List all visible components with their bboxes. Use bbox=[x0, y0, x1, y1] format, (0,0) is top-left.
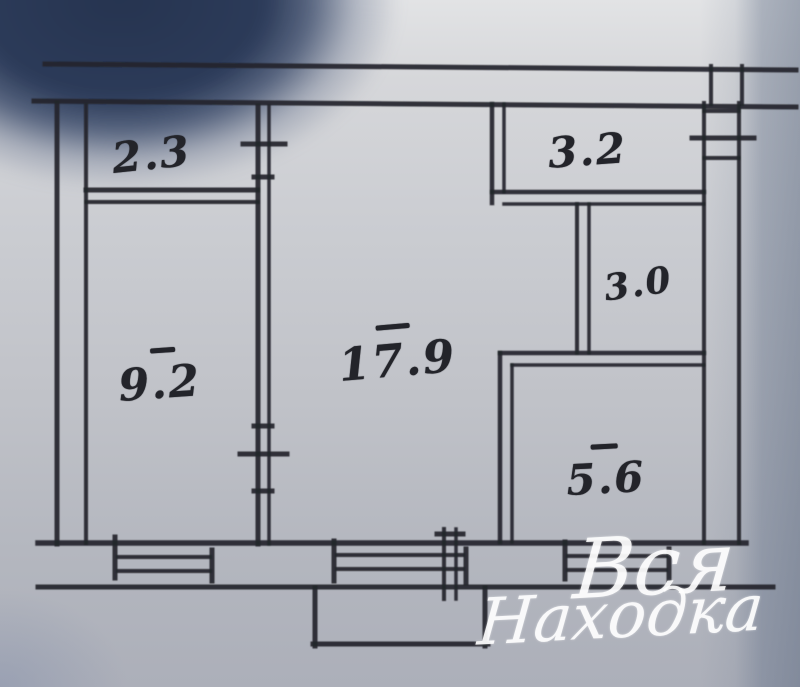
central-wall bbox=[258, 106, 269, 544]
left-wall bbox=[57, 103, 86, 544]
top-wall bbox=[34, 64, 796, 107]
scanned-floor-plan-photo: 2.3 3.2 3.0 17.9 9.2 5.6 Вся Находка bbox=[0, 0, 800, 687]
hallway-divider-wall bbox=[577, 204, 589, 353]
room-area-label-17-9: 17.9 bbox=[336, 319, 458, 388]
room-area-value: 17.9 bbox=[337, 329, 459, 392]
room-area-label-9-2: 9.2 bbox=[116, 345, 202, 409]
room-area-value: 3.2 bbox=[546, 123, 628, 177]
room-area-label-3-0: 3.0 bbox=[602, 261, 675, 306]
area-overbar bbox=[591, 443, 618, 449]
door-frame-marks bbox=[240, 144, 287, 491]
area-overbar bbox=[150, 347, 175, 354]
room-area-label-5-6: 5.6 bbox=[565, 442, 647, 502]
vent-shaft-symbol bbox=[692, 111, 754, 158]
room-area-label-2-3: 2.3 bbox=[110, 130, 193, 180]
room-2-3-bottom-wall bbox=[86, 190, 258, 202]
right-wall bbox=[704, 103, 739, 543]
room-area-label-3-2: 3.2 bbox=[547, 127, 629, 174]
room-area-value: 9.2 bbox=[117, 355, 203, 412]
room-area-value: 2.3 bbox=[110, 126, 194, 183]
watermark-line-2: Находка bbox=[475, 576, 766, 655]
balcony-outline bbox=[313, 588, 488, 646]
room-area-value: 5.6 bbox=[565, 452, 647, 505]
window-symbol-center bbox=[334, 541, 466, 583]
